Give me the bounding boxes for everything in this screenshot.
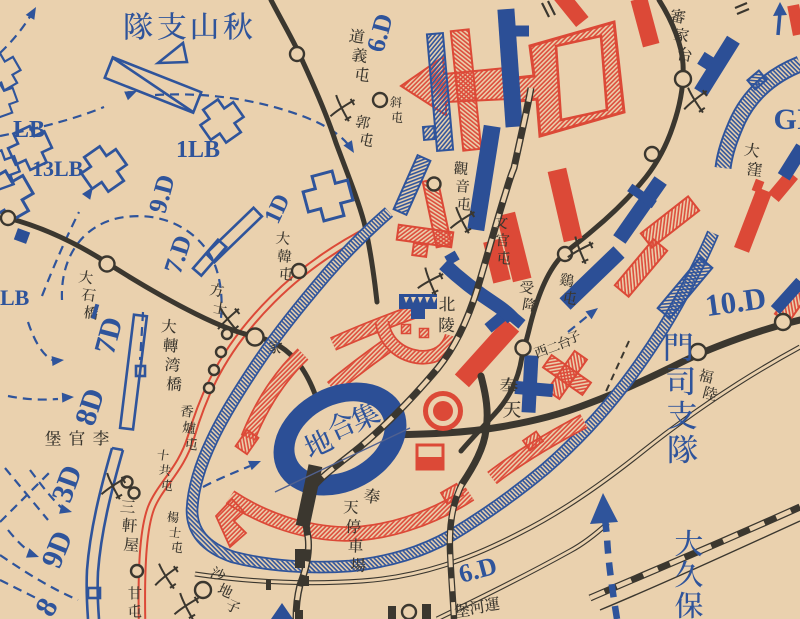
- svg-text:13LB: 13LB: [32, 156, 84, 181]
- svg-text:1LB: 1LB: [176, 137, 220, 163]
- svg-text:LB: LB: [13, 117, 45, 143]
- svg-text:GI: GI: [773, 103, 800, 136]
- svg-text:LB: LB: [0, 285, 30, 310]
